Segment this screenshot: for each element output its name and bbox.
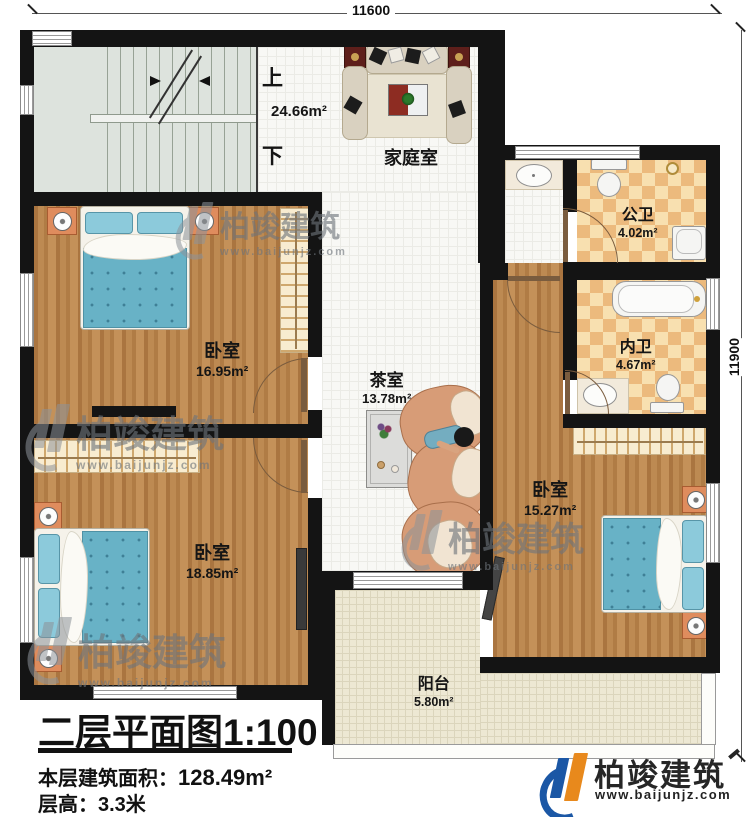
right-dimension-line bbox=[741, 30, 742, 762]
table-plant bbox=[401, 92, 415, 106]
floor-area-line: 本层建筑面积：128.49m² bbox=[38, 762, 272, 791]
person-head bbox=[454, 427, 474, 447]
toilet-bowl bbox=[656, 374, 680, 401]
stair-arrow bbox=[150, 76, 161, 86]
wall-segment bbox=[563, 280, 577, 380]
window bbox=[706, 278, 720, 330]
window bbox=[32, 31, 72, 46]
wall-segment bbox=[563, 414, 720, 428]
floor-height-line: 层高：3.3米 bbox=[38, 788, 146, 817]
wall-segment bbox=[308, 498, 322, 700]
watermark: 柏竣建筑www.baijunjz.com bbox=[76, 404, 224, 472]
balcony-sliding-door bbox=[353, 572, 463, 589]
wall-segment bbox=[493, 263, 508, 280]
toilet-tank bbox=[650, 402, 684, 413]
side-table-lamp bbox=[351, 53, 359, 61]
watermark-logo bbox=[26, 402, 72, 464]
side-table-lamp bbox=[455, 53, 463, 61]
stair-treads-upper bbox=[95, 47, 256, 114]
bathtub-drain bbox=[694, 296, 700, 302]
stair-arrow bbox=[199, 76, 210, 86]
window bbox=[706, 483, 720, 563]
watermark: 柏竣建筑www.baijunjz.com bbox=[220, 202, 347, 258]
stairs-up-label: 上 bbox=[262, 66, 283, 92]
wall-segment bbox=[563, 262, 720, 280]
bed-blanket bbox=[83, 248, 187, 328]
sink-drain bbox=[532, 174, 535, 177]
stair-landing-rail bbox=[90, 114, 258, 123]
nightstand-lamp bbox=[687, 491, 705, 509]
window bbox=[515, 146, 640, 159]
wall-segment bbox=[480, 657, 720, 673]
toilet-bowl bbox=[597, 172, 621, 197]
door-leaf bbox=[301, 358, 307, 412]
wardrobe-rod bbox=[577, 441, 703, 443]
watermark: 柏竣建筑www.baijunjz.com bbox=[448, 512, 584, 573]
stairs-down-label: 下 bbox=[262, 144, 283, 170]
nightstand-lamp bbox=[687, 617, 705, 635]
family-room-area: 24.66m² bbox=[271, 103, 327, 122]
bed-pillow bbox=[682, 520, 704, 563]
door-leaf bbox=[563, 210, 568, 262]
tv-panel bbox=[296, 548, 307, 630]
wardrobe bbox=[573, 427, 707, 455]
wall-segment bbox=[20, 30, 505, 47]
nightstand-lamp bbox=[53, 212, 72, 231]
watermark-logo bbox=[176, 200, 216, 254]
public-bath-label: 公卫4.02m² bbox=[618, 206, 658, 242]
brand-url: www.baijunjz.com bbox=[595, 787, 731, 802]
door-leaf bbox=[565, 372, 570, 414]
bed-pillow bbox=[85, 212, 133, 234]
floor-plan: 11600 11900 bbox=[0, 0, 750, 817]
door-leaf bbox=[508, 276, 560, 281]
bathtub-inner bbox=[618, 285, 694, 313]
balcony-floor bbox=[335, 590, 480, 744]
door-leaf bbox=[301, 440, 307, 493]
watermark-logo bbox=[28, 615, 74, 677]
wall-segment bbox=[322, 583, 335, 745]
brand-logo-swoosh bbox=[531, 758, 601, 817]
watermark: 柏竣建筑www.baijunjz.com bbox=[78, 622, 226, 690]
tea-cup bbox=[391, 465, 399, 473]
wall-segment bbox=[706, 145, 720, 673]
watermark-logo bbox=[402, 508, 444, 566]
window bbox=[20, 273, 34, 347]
toilet-tank bbox=[591, 159, 627, 170]
balcony-railing bbox=[701, 673, 716, 745]
nightstand-lamp bbox=[39, 507, 58, 526]
shower-tray-inner bbox=[676, 229, 702, 254]
balcony-label: 阳台5.80m² bbox=[414, 675, 454, 711]
sofa-pillow bbox=[405, 48, 422, 65]
bed-pillow bbox=[682, 567, 704, 610]
top-dimension-label: 11600 bbox=[347, 2, 395, 18]
bedroom2-label: 卧室18.85m² bbox=[186, 542, 238, 582]
private-bath-label: 内卫4.67m² bbox=[616, 338, 656, 374]
bed-blanket bbox=[603, 518, 661, 610]
tea-cup bbox=[377, 461, 385, 469]
tea-room-label: 茶室13.78m² bbox=[362, 370, 411, 408]
bed-pillow bbox=[38, 534, 60, 584]
flower-bouquet bbox=[374, 420, 394, 440]
title-underline bbox=[38, 748, 292, 753]
balcony-floor bbox=[480, 673, 703, 744]
ceiling-light bbox=[666, 162, 679, 175]
bedroom1-label: 卧室16.95m² bbox=[196, 340, 248, 380]
stair-treads-lower bbox=[95, 123, 256, 192]
brand-logo bbox=[540, 750, 590, 810]
window bbox=[20, 85, 34, 115]
family-room-label: 家庭室 bbox=[384, 147, 438, 170]
right-dimension-label: 11900 bbox=[726, 338, 742, 376]
stairwell-edge bbox=[256, 47, 258, 192]
